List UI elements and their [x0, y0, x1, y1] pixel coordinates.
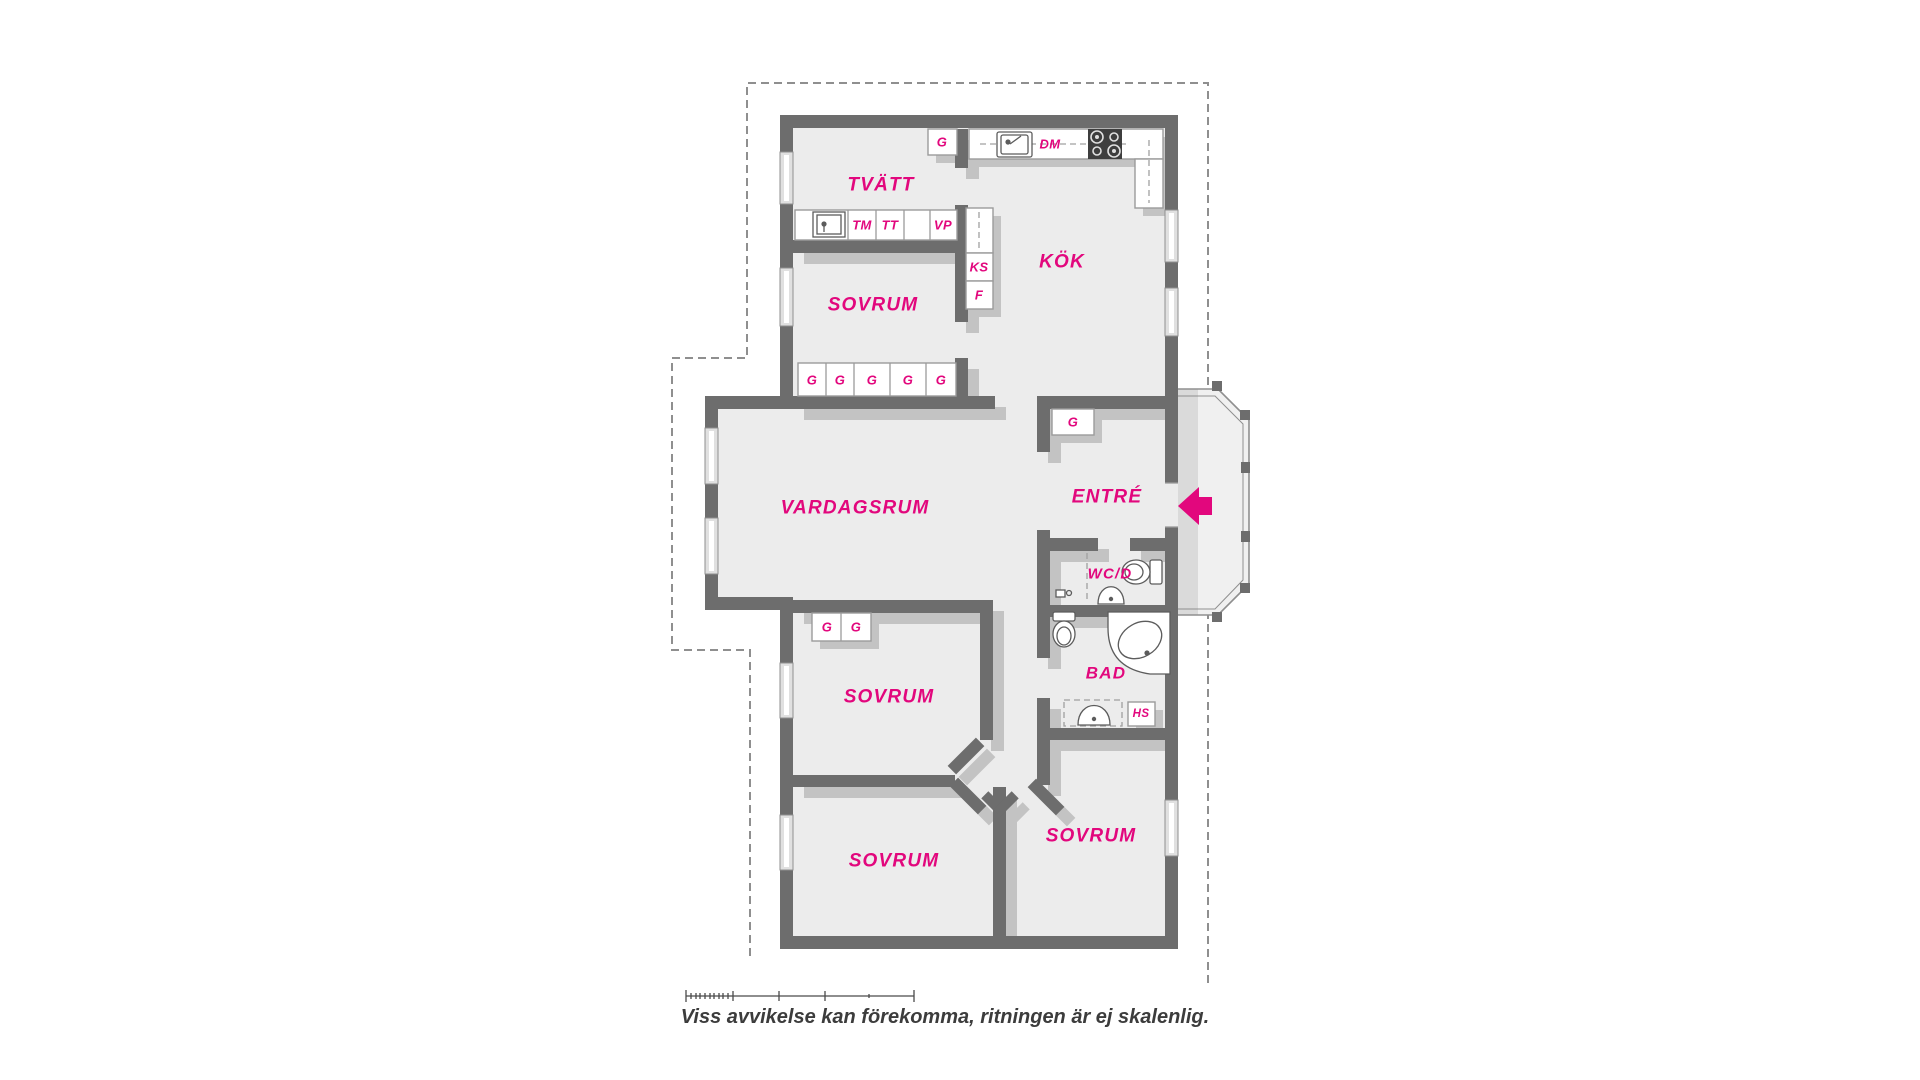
unit-label-g: G	[822, 620, 833, 635]
room-label-tvatt: TVÄTT	[847, 175, 914, 196]
window	[705, 518, 718, 574]
window	[780, 152, 793, 204]
room-label-entre: ENTRÉ	[1072, 486, 1143, 508]
unit-label-g: G	[1068, 415, 1079, 430]
window	[1165, 210, 1178, 262]
room-label-sovrum-bottom-left: SOVRUM	[849, 851, 940, 872]
porch-door-opening	[1165, 483, 1178, 527]
unit-label-g: G	[903, 373, 914, 388]
unit-label-g: G	[936, 373, 947, 388]
unit-label-f: F	[975, 288, 984, 303]
room-label-wcd: WC/D	[1088, 566, 1133, 583]
caption-text: Viss avvikelse kan förekomma, ritningen …	[681, 1006, 1209, 1028]
room-label-vardagsrum: VARDAGSRUM	[781, 498, 930, 519]
kitchen-sink-icon	[997, 132, 1032, 157]
window	[780, 815, 793, 870]
unit-label-g: G	[867, 373, 878, 388]
unit-label-vp: VP	[934, 218, 952, 233]
unit-label-hs: HS	[1133, 708, 1150, 720]
room-label-bad: BAD	[1086, 664, 1126, 683]
scale-bar	[686, 990, 914, 1002]
unit-label-tm: TM	[852, 218, 872, 233]
laundry-sink-icon	[813, 212, 845, 237]
window	[1165, 800, 1178, 856]
unit-label-g: G	[807, 373, 818, 388]
unit-label-g: G	[851, 620, 862, 635]
room-label-sovrum-mid: SOVRUM	[844, 687, 935, 708]
bath-toilet-icon	[1053, 612, 1075, 647]
room-label-sovrum-bottom-right: SOVRUM	[1046, 826, 1137, 847]
room-label-kok: KÖK	[1039, 252, 1085, 273]
window	[780, 663, 793, 718]
window	[705, 428, 718, 484]
unit-label-g: G	[835, 373, 846, 388]
unit-label-tt: TT	[882, 218, 899, 233]
window	[1165, 288, 1178, 336]
unit-label-ks: KS	[970, 260, 989, 275]
room-label-sovrum-top: SOVRUM	[828, 295, 919, 316]
unit-label-dm: DM	[1039, 137, 1061, 152]
floor-plan-image: TVÄTT KÖK SOVRUM VARDAGSRUM ENTRÉ WC/D B…	[0, 0, 1920, 1080]
stove-icon	[1088, 129, 1122, 159]
window	[780, 268, 793, 326]
unit-label-g: G	[937, 135, 948, 150]
